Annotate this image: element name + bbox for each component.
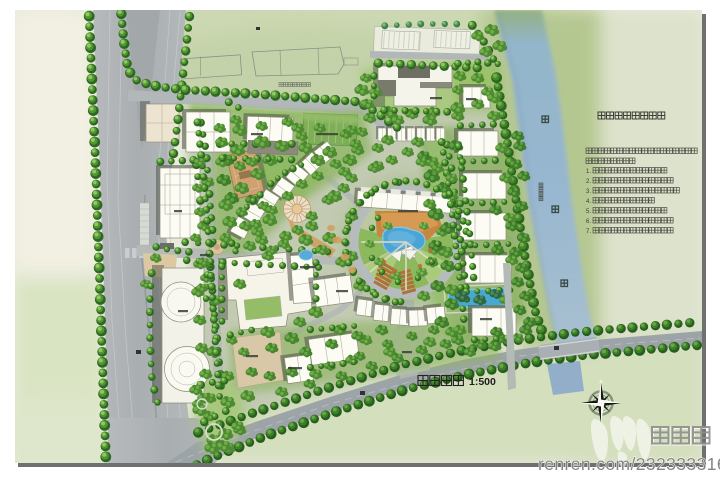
- svg-text:1:500: 1:500: [469, 376, 496, 388]
- svg-text:4.: 4.: [586, 199, 591, 205]
- svg-text:3.: 3.: [586, 189, 591, 195]
- svg-text:5.: 5.: [586, 209, 591, 215]
- svg-text:renren.com/232333316: renren.com/232333316: [538, 454, 720, 474]
- svg-text:1.: 1.: [586, 169, 591, 175]
- svg-text:6.: 6.: [586, 219, 591, 225]
- svg-text:7.: 7.: [586, 229, 591, 235]
- svg-text:2.: 2.: [586, 179, 591, 185]
